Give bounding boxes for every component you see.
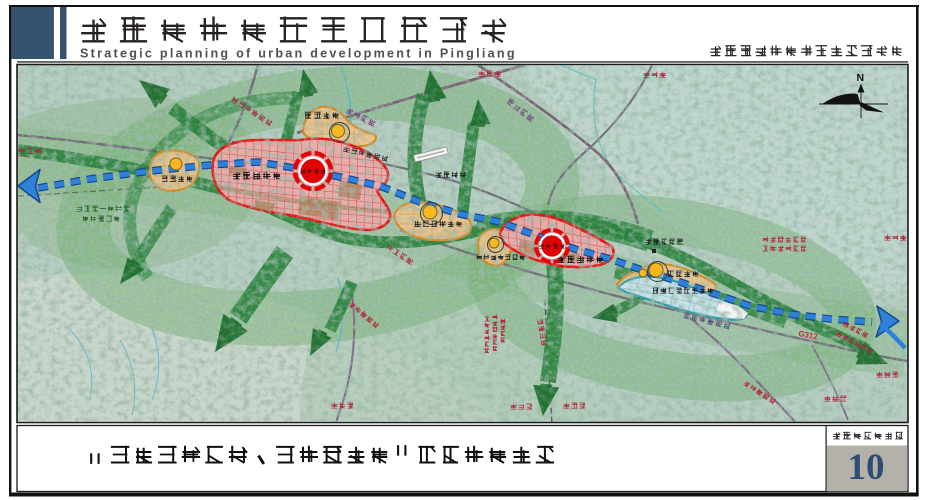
svg-text:N: N — [857, 72, 865, 84]
svg-text:10: 10 — [848, 447, 885, 488]
svg-text:Strategic planning of urban de: Strategic planning of urban development … — [80, 47, 517, 61]
